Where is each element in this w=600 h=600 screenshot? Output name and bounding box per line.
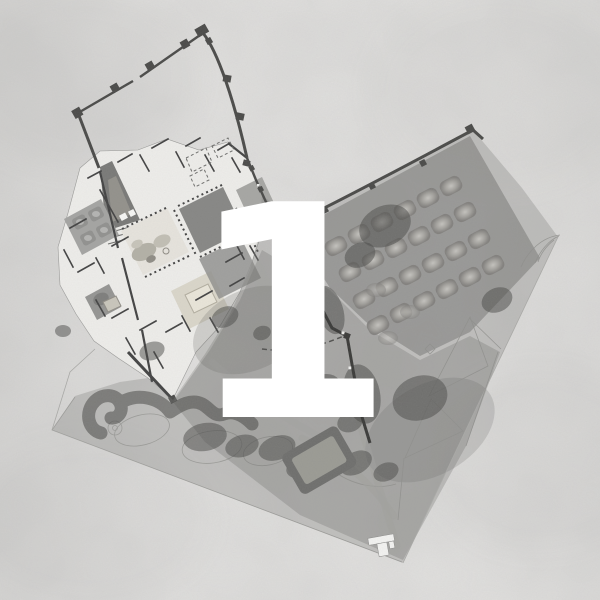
figure-number: 1 [188,142,394,487]
site-plan-figure: 1 [0,0,600,600]
site-plan-map: 1 [0,0,600,600]
